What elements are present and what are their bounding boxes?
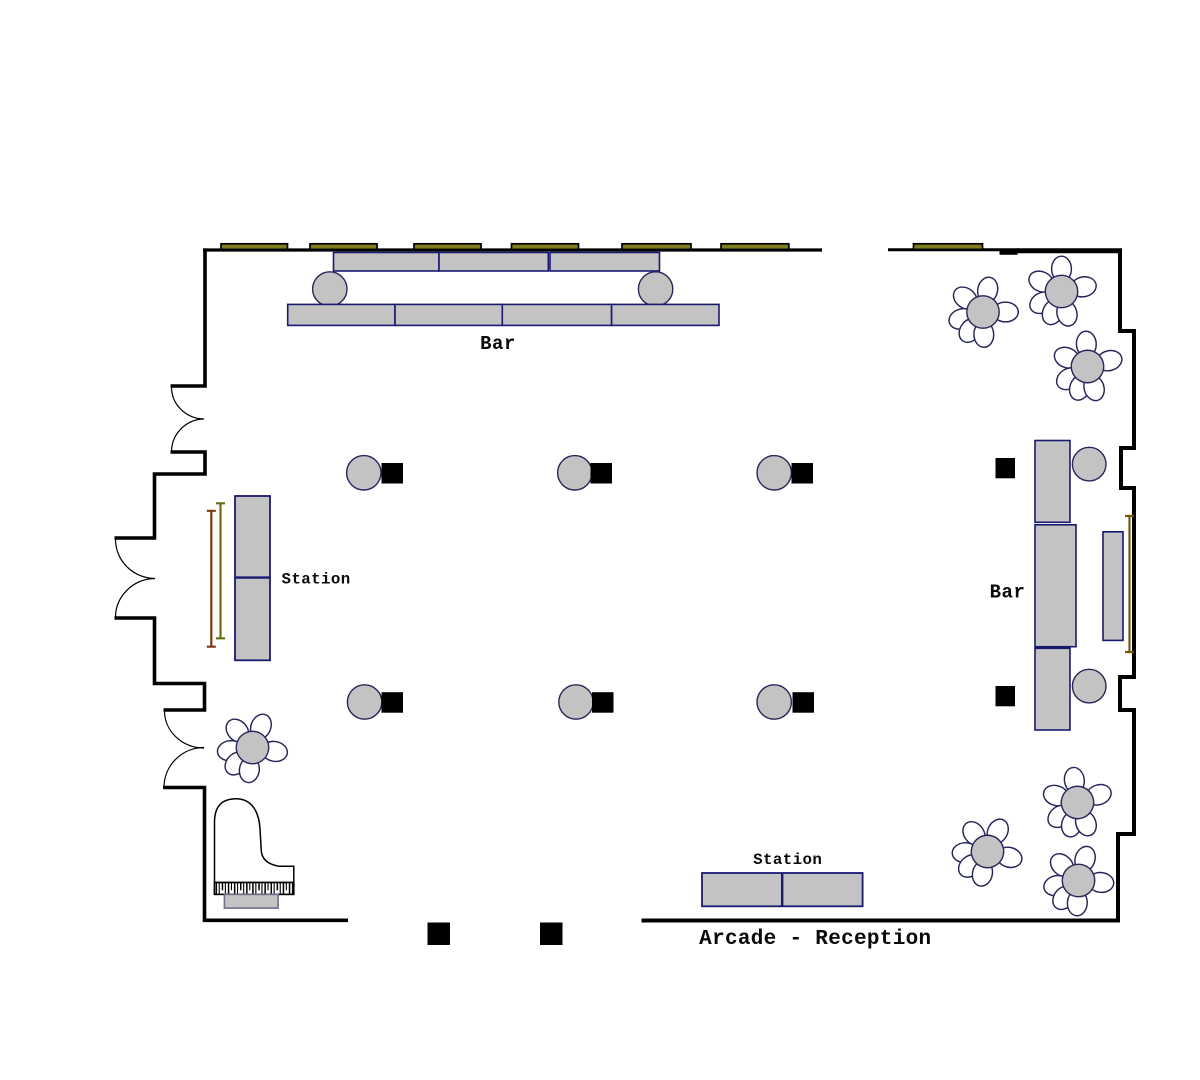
- svg-text:Arcade - Reception: Arcade - Reception: [699, 928, 931, 951]
- svg-text:Bar: Bar: [990, 582, 1026, 604]
- svg-text:Station: Station: [753, 851, 822, 869]
- svg-text:Station: Station: [282, 571, 351, 589]
- svg-text:Bar: Bar: [480, 333, 516, 355]
